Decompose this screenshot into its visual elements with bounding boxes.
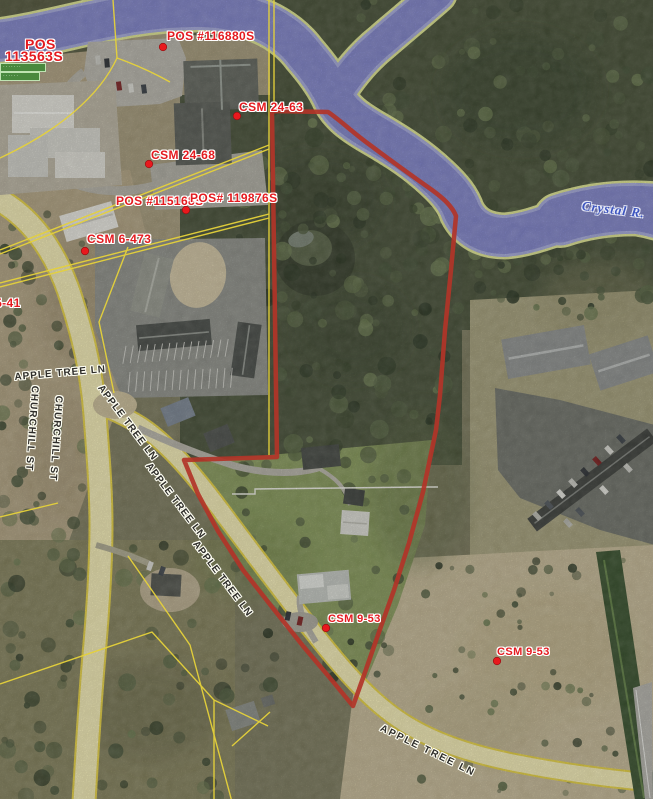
- small-green-parcel-chip-1: ·······: [0, 63, 46, 72]
- doc-label-pos-113563s-line2[interactable]: 113563S: [5, 48, 63, 64]
- doc-label-csm-24-68[interactable]: CSM 24-68: [151, 148, 215, 162]
- marker-csm-9-53-a[interactable]: [322, 624, 330, 632]
- grain-overlay-light: [0, 0, 653, 799]
- aerial-imagery-canvas: [0, 0, 653, 799]
- doc-label-csm-9-53-b[interactable]: CSM 9-53: [497, 646, 550, 658]
- doc-label-pos-116880s[interactable]: POS #116880S: [167, 29, 255, 43]
- doc-label-csm-9-53-a[interactable]: CSM 9-53: [328, 613, 381, 625]
- marker-pos-116880s[interactable]: [159, 43, 167, 51]
- small-green-parcel-chip-2: ······: [0, 72, 40, 81]
- marker-csm-6-473[interactable]: [81, 247, 89, 255]
- doc-label-35-41[interactable]: 35-41: [0, 296, 21, 310]
- marker-csm-9-53-b[interactable]: [493, 657, 501, 665]
- doc-label-pos-119876s[interactable]: POS# 119876S: [190, 191, 278, 205]
- doc-label-csm-24-63[interactable]: CSM 24-63: [239, 100, 303, 114]
- doc-label-csm-6-473[interactable]: CSM 6-473: [87, 232, 151, 246]
- gis-aerial-map[interactable]: POS 113563S ······· ······ POS #116880S …: [0, 0, 653, 799]
